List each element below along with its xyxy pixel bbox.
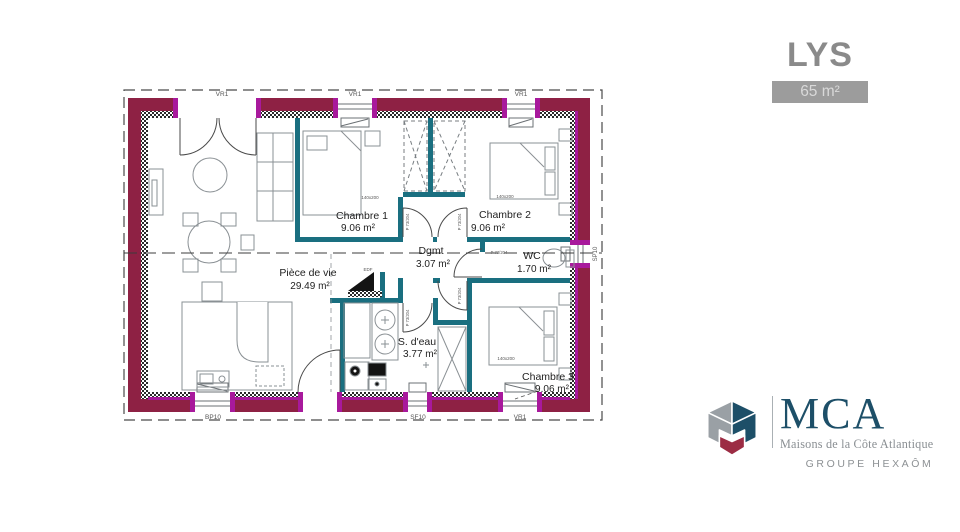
room-label: Chambre 3 — [522, 371, 574, 383]
room-salle-eau: S. d'eau 3.77 m² — [398, 336, 438, 360]
window-label-bottom-3: VR1 — [514, 414, 527, 421]
entry-door — [298, 350, 340, 392]
area-badge: 65 m² — [772, 81, 868, 103]
entry-french-door — [180, 118, 256, 155]
door-size-label: P 73/204 — [405, 309, 410, 326]
room-dgmt: Dgmt 3.07 m² — [416, 245, 451, 270]
room-label: Pièce de vie — [279, 267, 336, 279]
window-label-top-3: VR1 — [515, 91, 528, 98]
room-chambre-1: Chambre 1 9.06 m² — [336, 210, 388, 234]
room-area: 1.70 m² — [517, 264, 552, 275]
room-label: S. d'eau — [398, 336, 436, 348]
logo-separator — [772, 396, 773, 448]
edf-label: EDF — [364, 267, 373, 272]
room-piece-de-vie: Pièce de vie 29.49 m² — [279, 267, 336, 292]
bed-size-label: 140x200 — [496, 194, 514, 199]
window-label-bottom-2: SF10 — [410, 414, 426, 421]
door-chambre-2 — [438, 208, 467, 237]
laundry-appliances — [345, 362, 386, 390]
room-label: WC — [523, 250, 541, 262]
bed-chambre-1 — [303, 131, 380, 215]
room-label: Chambre 2 — [479, 209, 531, 221]
mca-cube-icon — [700, 398, 764, 460]
bed-size-label: 140x200 — [361, 195, 379, 200]
room-label: Dgmt — [418, 245, 443, 257]
room-area: 3.07 m² — [416, 259, 451, 270]
room-chambre-2: Chambre 2 9.06 m² — [471, 209, 531, 234]
brand-logo: MCA Maisons de la Côte Atlantique GROUPE… — [700, 394, 950, 470]
vanity-basins — [344, 303, 398, 360]
door-size-label: P 73/204 — [491, 250, 508, 255]
model-name: LYS — [768, 38, 872, 72]
bed-chambre-3 — [489, 293, 571, 380]
edf-panel — [348, 272, 382, 297]
room-area: 9.06 m² — [341, 223, 376, 234]
logo-acronym: MCA — [780, 394, 933, 434]
door-size-label: P 73/204 — [405, 213, 410, 230]
door-chambre-3 — [438, 281, 467, 310]
room-label: Chambre 1 — [336, 210, 388, 222]
door-size-label: P 73/204 — [457, 213, 462, 230]
header: LYS 65 m² — [768, 38, 872, 103]
logo-group: GROUPE HEXAÔM — [780, 458, 933, 470]
sofa — [257, 133, 293, 221]
door-size-label: P 73/204 — [457, 287, 462, 304]
bed-size-label: 140x200 — [497, 356, 515, 361]
window-label-top-2: VR1 — [349, 91, 362, 98]
window-label-top-1: VR1 — [216, 91, 229, 98]
room-labels: Chambre 1 9.06 m² Chambre 2 9.06 m² Dgmt… — [279, 209, 574, 395]
floor-plan-page: Chambre 1 9.06 m² Chambre 2 9.06 m² Dgmt… — [0, 0, 960, 532]
room-area: 9.06 m² — [471, 223, 506, 234]
closets — [404, 121, 465, 191]
room-area: 29.49 m² — [290, 281, 330, 292]
room-area: 9.06 m² — [535, 384, 570, 395]
furniture — [149, 129, 574, 391]
window-label-right: SP10 — [593, 246, 599, 261]
bed-chambre-2 — [490, 129, 572, 215]
room-wc: WC 1.70 m² — [517, 250, 552, 275]
tv-unit — [149, 169, 163, 215]
logo-tagline: Maisons de la Côte Atlantique — [780, 437, 933, 452]
dining-table — [183, 213, 254, 272]
room-area: 3.77 m² — [403, 349, 438, 360]
kitchen-counter — [182, 282, 292, 390]
window-label-bottom-1: BP10 — [205, 414, 221, 421]
rug — [193, 158, 227, 192]
